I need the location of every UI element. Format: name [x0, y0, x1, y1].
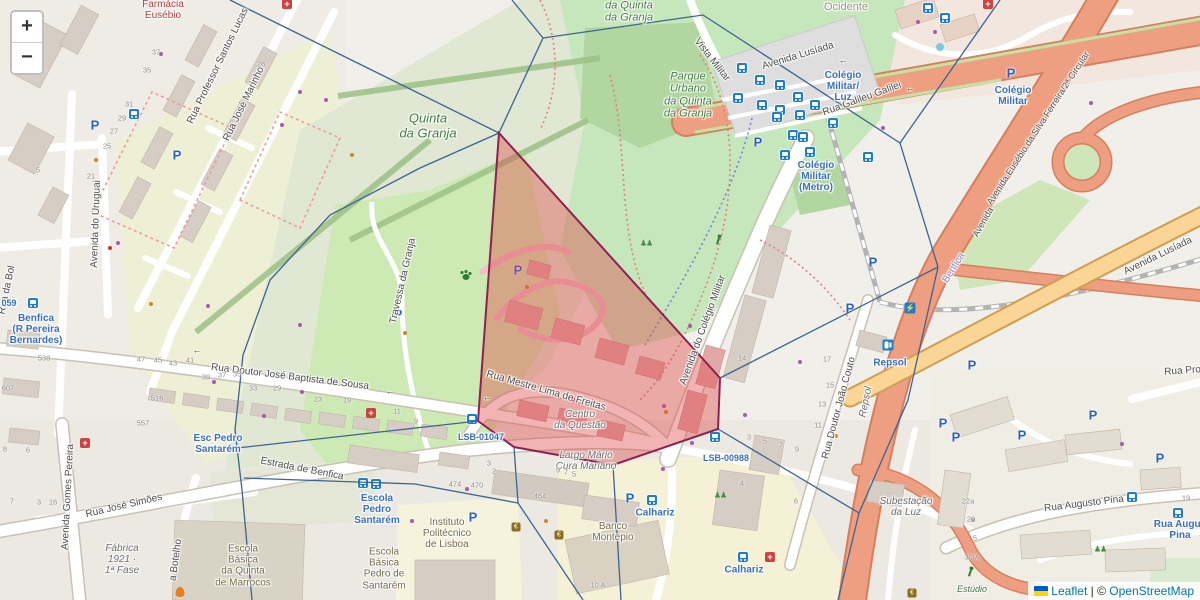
copyright-symbol: © — [1097, 584, 1109, 598]
leaflet-link[interactable]: Leaflet — [1051, 584, 1087, 598]
map-tiles — [0, 0, 1200, 600]
ukraine-flag-icon — [1034, 586, 1048, 596]
zoom-in-button[interactable]: + — [12, 12, 42, 43]
openstreetmap-link[interactable]: OpenStreetMap — [1109, 584, 1194, 598]
zoom-out-button[interactable]: − — [12, 43, 42, 73]
map-canvas[interactable]: PPPPPPPPPPPPPPPP+++++⚡€€€♟♟♟♟♟♟ Rua Prof… — [0, 0, 1200, 600]
attribution-bar: Leaflet | © OpenStreetMap — [1028, 582, 1200, 600]
zoom-control: + − — [10, 10, 44, 75]
attribution-separator: | — [1087, 584, 1097, 598]
